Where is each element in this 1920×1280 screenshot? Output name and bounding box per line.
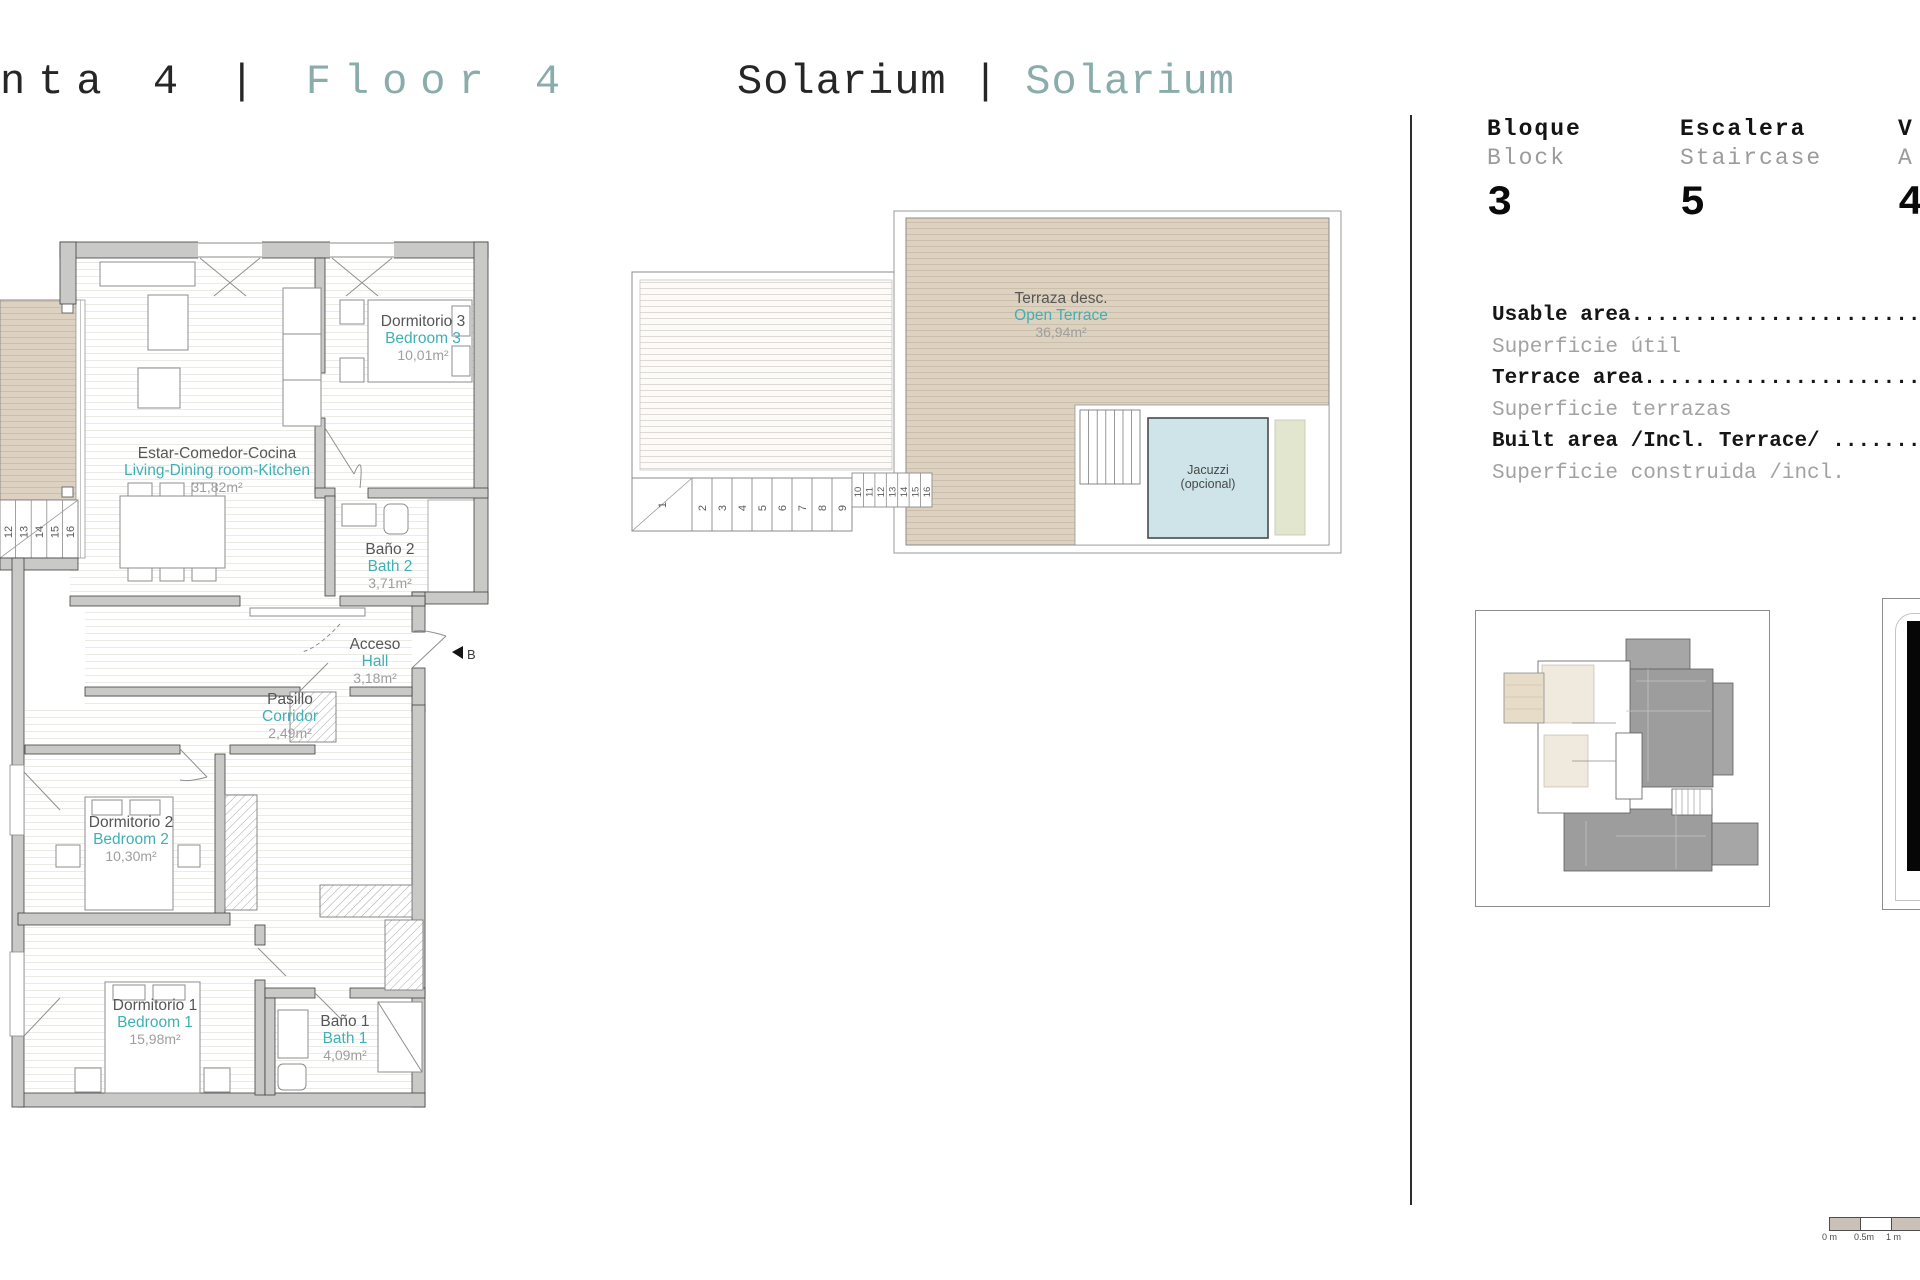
stair-number: 6: [777, 505, 789, 511]
room-name-en: Living-Dining room-Kitchen: [124, 462, 310, 479]
solarium-title: Solarium | Solarium: [737, 58, 1235, 106]
room-label-bedroom2: Dormitorio 2 Bedroom 2 10,30m²: [89, 814, 173, 864]
green-strip: [1275, 420, 1305, 535]
area-summary: Usable area.............................…: [1492, 300, 1920, 489]
scale-segment: [1829, 1217, 1861, 1231]
jacuzzi-label: Jacuzzi (opcional): [1181, 463, 1236, 491]
stair-number: 4: [737, 505, 749, 511]
scale-segment: [1891, 1217, 1920, 1231]
jacuzzi-line2: (opcional): [1181, 477, 1236, 491]
floor-title: nta 4 | Floor 4: [0, 58, 573, 106]
room-name-es: Acceso: [350, 636, 401, 653]
plan-stair-numbers: 12 13 14 15 16: [3, 526, 77, 538]
stair-number: 16: [65, 526, 77, 538]
terrace-area-label-es: Superficie terrazas: [1492, 395, 1920, 427]
room-label-living: Estar-Comedor-Cocina Living-Dining room-…: [124, 445, 310, 495]
built-area-label-es: Superficie construida /incl.: [1492, 458, 1920, 490]
floor-title-es: nta 4: [0, 58, 191, 106]
jacuzzi-line1: Jacuzzi: [1181, 463, 1236, 477]
solarium-title-bar: |: [973, 58, 999, 106]
room-name-es: Pasillo: [262, 691, 318, 708]
staircase-label-es: Escalera: [1680, 116, 1822, 142]
entry-marker: B: [452, 646, 476, 662]
terrace-area-label: Terrace area............................…: [1492, 363, 1920, 395]
built-area-label: Built area /Incl. Terrace/ .............…: [1492, 426, 1920, 458]
location-highlight-bar: [1907, 621, 1920, 871]
room-area: 15,98m²: [113, 1032, 197, 1048]
room-label-bedroom3: Dormitorio 3 Bedroom 3 10,01m²: [381, 313, 465, 363]
apartment-value: 4: [1898, 179, 1920, 227]
stair-number: 2: [697, 505, 709, 511]
stair-number: 14: [34, 526, 46, 538]
room-name-en: Bedroom 2: [89, 831, 173, 848]
room-label-open-terrace: Terraza desc. Open Terrace 36,94m²: [1014, 290, 1108, 340]
key-plan-thumbnail: [1475, 610, 1770, 907]
block-label-en: Block: [1487, 145, 1582, 171]
room-label-bath2: Baño 2 Bath 2 3,71m²: [365, 541, 414, 591]
apartment-label-en: A: [1898, 145, 1920, 171]
scale-label-1: 1 m: [1886, 1232, 1901, 1242]
block-label-es: Bloque: [1487, 116, 1582, 142]
usable-area-label-es: Superficie útil: [1492, 332, 1920, 364]
solarium-title-sep: [947, 58, 973, 106]
room-name-es: Terraza desc.: [1014, 290, 1108, 307]
room-name-en: Corridor: [262, 708, 318, 725]
room-label-bath1: Baño 1 Bath 1 4,09m²: [320, 1013, 369, 1063]
deck-mini-stair: [1080, 410, 1140, 484]
stair-number: 5: [757, 505, 769, 511]
scale-label-05: 0.5m: [1854, 1232, 1874, 1242]
scale-label-0: 0 m: [1822, 1232, 1837, 1242]
room-area: 31,82m²: [124, 480, 310, 496]
room-label-corridor: Pasillo Corridor 2,49m²: [262, 691, 318, 741]
stair-number: 15: [50, 526, 62, 538]
stair-number: 11: [865, 487, 876, 497]
usable-area-label: Usable area.............................…: [1492, 300, 1920, 332]
stair-number: 3: [717, 505, 729, 511]
room-name-en: Bedroom 3: [381, 330, 465, 347]
staircase-value: 5: [1680, 179, 1822, 227]
room-area: 10,30m²: [89, 849, 173, 865]
room-area: 36,94m²: [1014, 325, 1108, 341]
solarium-title-es: Solarium: [737, 58, 947, 106]
stair-number: 13: [888, 487, 899, 498]
stair-number: 1: [657, 502, 669, 508]
stair-number: 14: [899, 487, 910, 498]
header-block: Bloque Block 3: [1487, 116, 1582, 227]
room-name-en: Bedroom 1: [113, 1014, 197, 1031]
room-area: 10,01m²: [381, 348, 465, 364]
room-name-en: Open Terrace: [1014, 307, 1108, 324]
vertical-divider: [1410, 115, 1412, 1205]
header-staircase: Escalera Staircase 5: [1680, 116, 1822, 227]
open-terrace-deck: [894, 211, 1341, 553]
key-plan-drawing: [1476, 611, 1767, 904]
room-name-en: Hall: [350, 653, 401, 670]
plan-sheet: nta 4 | Floor 4 Solarium | Solarium: [0, 0, 1920, 1280]
room-name-es: Baño 2: [365, 541, 414, 558]
solarium-stairs: 1 2 3 4 5 6 7 8 9 10 11 12 13 14 15 16: [632, 473, 933, 531]
room-area: 4,09m²: [320, 1048, 369, 1064]
stair-number: 16: [922, 487, 933, 498]
room-area: 3,18m²: [350, 671, 401, 687]
room-label-hall: Acceso Hall 3,18m²: [350, 636, 401, 686]
solarium-plan: 1 2 3 4 5 6 7 8 9 10 11 12 13 14 15 16: [630, 205, 1345, 560]
floor-title-sep2: [267, 58, 305, 106]
staircase-label-en: Staircase: [1680, 145, 1822, 171]
room-name-es: Dormitorio 3: [381, 313, 465, 330]
apartment-label-es: V: [1898, 116, 1920, 142]
room-name-es: Dormitorio 1: [113, 997, 197, 1014]
room-name-en: Bath 1: [320, 1030, 369, 1047]
header-apartment: V A 4: [1898, 116, 1920, 227]
stair-number: 9: [837, 505, 849, 511]
solarium-title-en: Solarium: [1025, 58, 1235, 106]
stair-number: 8: [817, 505, 829, 511]
location-box-partial: [1882, 598, 1920, 910]
room-area: 3,71m²: [365, 576, 414, 592]
block-value: 3: [1487, 179, 1582, 227]
stair-number: 10: [853, 487, 864, 498]
stair-number: 12: [876, 487, 887, 498]
stair-number: 12: [3, 526, 15, 538]
room-name-en: Bath 2: [365, 558, 414, 575]
scale-segment: [1860, 1217, 1892, 1231]
roof-structure: [632, 272, 900, 478]
entry-marker-label: B: [467, 647, 476, 662]
stair-number: 15: [910, 487, 921, 498]
solarium-title-sep2: [999, 58, 1025, 106]
room-name-es: Baño 1: [320, 1013, 369, 1030]
room-area: 2,49m²: [262, 726, 318, 742]
scale-bar: [1830, 1217, 1920, 1231]
room-name-es: Estar-Comedor-Cocina: [124, 445, 310, 462]
terrace-deck: 12 13 14 15 16: [0, 300, 85, 570]
stair-number: 7: [797, 505, 809, 511]
entry-arrow-icon: [452, 646, 463, 659]
room-label-bedroom1: Dormitorio 1 Bedroom 1 15,98m²: [113, 997, 197, 1047]
stair-number: 13: [18, 526, 30, 538]
floor-title-bar: |: [229, 58, 267, 106]
room-name-es: Dormitorio 2: [89, 814, 173, 831]
floor-title-sep: [191, 58, 229, 106]
floor-title-en: Floor 4: [306, 58, 573, 106]
